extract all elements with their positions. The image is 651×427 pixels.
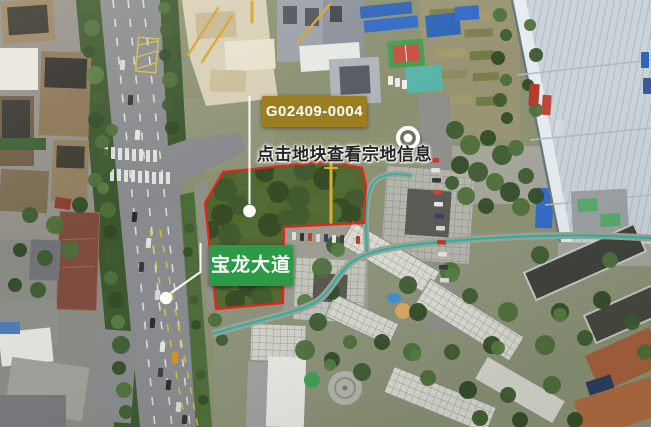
road-anchor-dot [160, 292, 173, 305]
aerial-map-view[interactable]: G02409-0004 点击地块查看宗地信息 宝龙大道 [0, 0, 651, 427]
parcel-id-label[interactable]: G02409-0004 [262, 96, 367, 127]
road-name-label: 宝龙大道 [209, 245, 293, 286]
parcel-anchor-dot [243, 205, 256, 218]
satellite-basemap [0, 0, 651, 427]
parcel-hint-text: 点击地块查看宗地信息 [257, 140, 432, 165]
